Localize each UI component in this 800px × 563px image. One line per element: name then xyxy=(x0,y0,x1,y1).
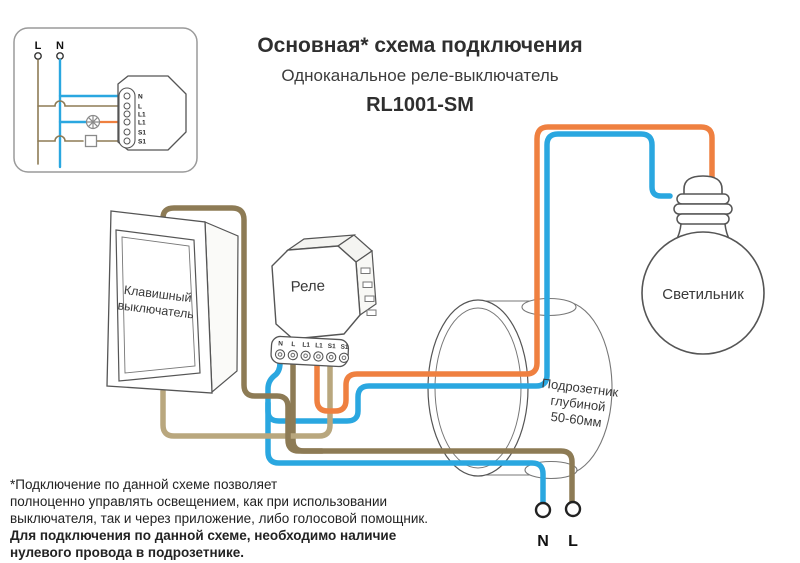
relay-terminal-pin xyxy=(329,355,333,359)
inset-lamp-symbol xyxy=(87,116,100,129)
supply-l-label: L xyxy=(568,533,578,550)
footnote-line: полноценно управлять освещением, как при… xyxy=(10,493,428,510)
inset-terminal-label-s1b: S1 xyxy=(138,139,146,146)
inset-terminal-label-n: N xyxy=(138,94,143,101)
inset-terminal-label-s1a: S1 xyxy=(138,130,146,137)
relay-clip xyxy=(361,268,370,274)
wires xyxy=(163,127,712,503)
supply-terminal-n xyxy=(536,503,550,517)
relay-terminal-pin xyxy=(304,354,308,358)
relay-device: Реле N L L1 L1 S1 xyxy=(271,235,376,367)
supply-n-label: N xyxy=(537,533,549,550)
inset-terminal-hole xyxy=(124,93,130,99)
inset-terminal-label-l: L xyxy=(138,104,142,111)
supply-terminals: N L xyxy=(536,502,580,550)
inset-terminal-hole xyxy=(124,111,130,117)
inset-n-terminal xyxy=(57,53,63,59)
relay-terminal-label-l1a: L1 xyxy=(302,342,310,349)
inset-terminal-hole xyxy=(124,138,130,144)
relay-label: Реле xyxy=(290,277,325,295)
relay-terminal-label-s1a: S1 xyxy=(328,343,337,350)
inset-l-label: L xyxy=(35,40,42,52)
relay-terminal-label-l: L xyxy=(291,341,295,348)
relay-terminal-pin xyxy=(278,353,282,357)
footnote-line: *Подключение по данной схеме позволяет xyxy=(10,476,428,493)
supply-terminal-l xyxy=(566,502,580,516)
relay-terminal-label-n: N xyxy=(278,340,283,347)
inset-l-terminal xyxy=(35,53,41,59)
bulb-label: Светильник xyxy=(662,286,744,303)
inset-terminal-label-l1a: L1 xyxy=(138,112,146,119)
bulb-thread xyxy=(677,214,729,224)
footnote: *Подключение по данной схеме позволяет п… xyxy=(10,476,428,561)
light-bulb: Светильник xyxy=(642,176,764,354)
relay-terminal-strip: N L L1 L1 S1 S1 xyxy=(271,336,350,367)
relay-terminal-pin xyxy=(342,356,346,360)
inset-switch-symbol xyxy=(86,136,97,147)
inset-n-label: N xyxy=(56,40,64,52)
inset-terminal-hole xyxy=(124,129,130,135)
relay-terminal-pin xyxy=(291,353,295,357)
relay-terminal-label-s1b: S1 xyxy=(340,344,349,351)
inset-terminal-hole xyxy=(124,119,130,125)
footnote-line-bold: Для подключения по данной схеме, необход… xyxy=(10,527,428,544)
bulb-thread xyxy=(674,204,732,214)
relay-terminal-label-l1b: L1 xyxy=(315,342,323,349)
wall-switch: Клавишный выключатель xyxy=(107,211,238,393)
footnote-line-bold: нулевого провода в подрозетнике. xyxy=(10,544,428,561)
relay-clip xyxy=(363,282,372,288)
relay-clip xyxy=(367,310,376,316)
footnote-line: выключателя, так и через приложение, либ… xyxy=(10,510,428,527)
bulb-cap xyxy=(684,176,722,195)
lamp-symbol-spokes xyxy=(87,116,100,129)
bulb-thread xyxy=(677,194,729,204)
relay-clip xyxy=(365,296,374,302)
relay-terminal-pin xyxy=(317,355,321,359)
inset-terminal-hole xyxy=(124,103,130,109)
inset-terminal-label-l1b: L1 xyxy=(138,120,146,127)
inset-schematic: L N N L L1 xyxy=(14,28,197,172)
